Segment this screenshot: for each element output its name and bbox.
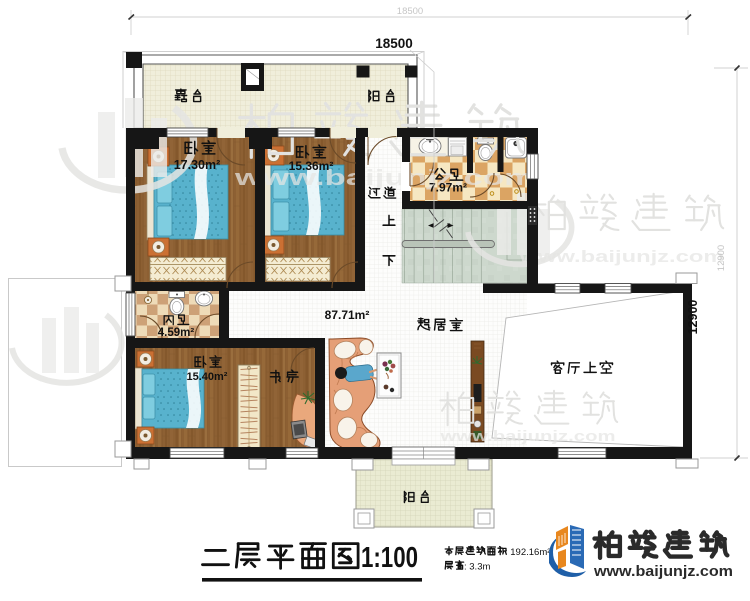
svg-text:18500: 18500 bbox=[375, 36, 413, 51]
svg-text:15.40m²: 15.40m² bbox=[187, 371, 228, 383]
svg-text:4.59m²: 4.59m² bbox=[158, 327, 195, 339]
svg-text:18500: 18500 bbox=[397, 6, 423, 17]
svg-text:: 192.16m²: : 192.16m² bbox=[505, 547, 550, 558]
svg-text:17.30m²: 17.30m² bbox=[174, 158, 221, 172]
svg-text:www.baijunjz.com: www.baijunjz.com bbox=[593, 564, 733, 580]
svg-text:: 3.3m: : 3.3m bbox=[464, 562, 490, 573]
svg-text:1:100: 1:100 bbox=[361, 542, 418, 574]
svg-text:12900: 12900 bbox=[716, 245, 727, 271]
svg-text:87.71m²: 87.71m² bbox=[325, 308, 370, 322]
svg-text:www.baijunjz.com: www.baijunjz.com bbox=[518, 247, 724, 266]
svg-text:7.97m²: 7.97m² bbox=[429, 181, 467, 195]
svg-text:12900: 12900 bbox=[686, 300, 700, 335]
svg-text:15.36m²: 15.36m² bbox=[289, 159, 334, 173]
svg-text:www.baijunjz.com: www.baijunjz.com bbox=[439, 428, 615, 445]
